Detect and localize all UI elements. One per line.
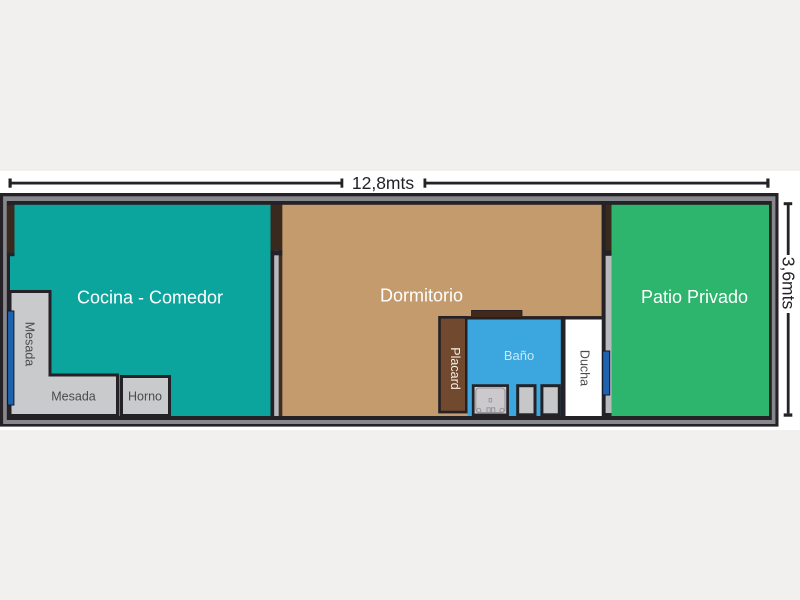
svg-text:3,6mts: 3,6mts [779, 257, 799, 310]
svg-text:Ducha: Ducha [578, 350, 592, 386]
svg-text:12,8mts: 12,8mts [352, 173, 414, 193]
svg-text:Mesada: Mesada [23, 322, 37, 367]
svg-text:Horno: Horno [128, 390, 162, 404]
svg-text:Placard: Placard [448, 347, 462, 389]
svg-text:Baño: Baño [504, 348, 534, 363]
svg-text:Mesada: Mesada [51, 390, 96, 404]
svg-text:Cocina - Comedor: Cocina - Comedor [77, 288, 223, 308]
svg-text:Dormitorio: Dormitorio [380, 286, 463, 306]
svg-text:Patio Privado: Patio Privado [641, 287, 748, 307]
